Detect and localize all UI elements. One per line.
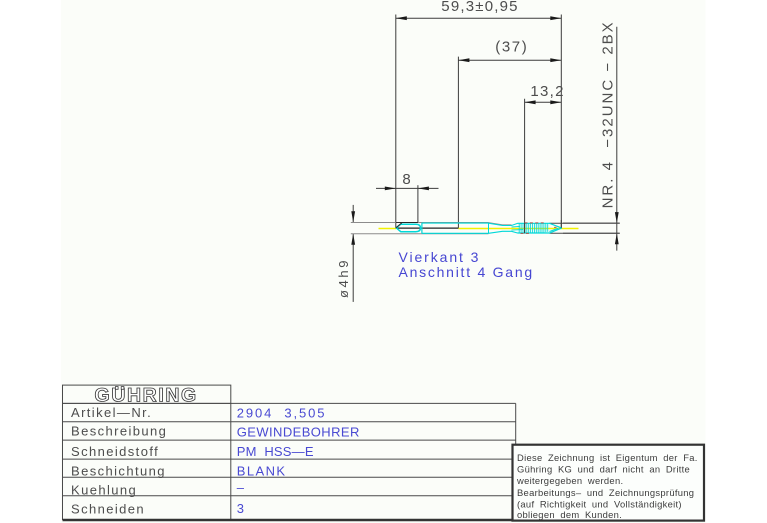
svg-text:Schneiden: Schneiden	[71, 501, 145, 516]
svg-text:8: 8	[402, 171, 410, 188]
svg-text:59,3±0,95: 59,3±0,95	[441, 0, 518, 15]
svg-text:Vierkant 3: Vierkant 3	[399, 249, 481, 265]
svg-text:Anschnitt 4 Gang: Anschnitt 4 Gang	[399, 264, 534, 280]
svg-text:Artikel—Nr.: Artikel—Nr.	[71, 405, 152, 420]
svg-text:Gühring KG und darf nicht an D: Gühring KG und darf nicht an Dritte	[517, 464, 690, 475]
svg-text:obliegen dem Kunden.: obliegen dem Kunden.	[517, 509, 622, 520]
svg-text:13,2: 13,2	[530, 83, 564, 100]
svg-text:Beschichtung: Beschichtung	[71, 463, 166, 478]
svg-text:3: 3	[237, 501, 244, 516]
svg-text:–: –	[237, 480, 245, 495]
svg-text:(37): (37)	[495, 39, 528, 56]
svg-text:Bearbeitungs– und Zeichnungspr: Bearbeitungs– und Zeichnungsprüfung	[517, 487, 694, 498]
svg-text:(auf Richtigkeit und Vollständ: (auf Richtigkeit und Vollständigkeit)	[517, 498, 682, 509]
svg-text:weitergegeben werden.: weitergegeben werden.	[516, 475, 623, 486]
svg-text:Schneidstoff: Schneidstoff	[71, 444, 159, 459]
svg-text:BLANK: BLANK	[237, 463, 287, 478]
svg-text:PM HSS—E: PM HSS—E	[237, 444, 314, 459]
svg-text:Diese Zeichnung ist Eigentum d: Diese Zeichnung ist Eigentum der Fa.	[517, 452, 698, 463]
svg-text:NR. 4 −32UNC − 2BX: NR. 4 −32UNC − 2BX	[600, 20, 617, 208]
svg-text:2904 3,505: 2904 3,505	[237, 405, 327, 420]
svg-text:ø4h9: ø4h9	[336, 258, 351, 298]
svg-text:GEWINDEBOHRER: GEWINDEBOHRER	[237, 424, 360, 439]
svg-text:Kuehlung: Kuehlung	[71, 482, 137, 497]
svg-text:Beschreibung: Beschreibung	[71, 424, 167, 439]
